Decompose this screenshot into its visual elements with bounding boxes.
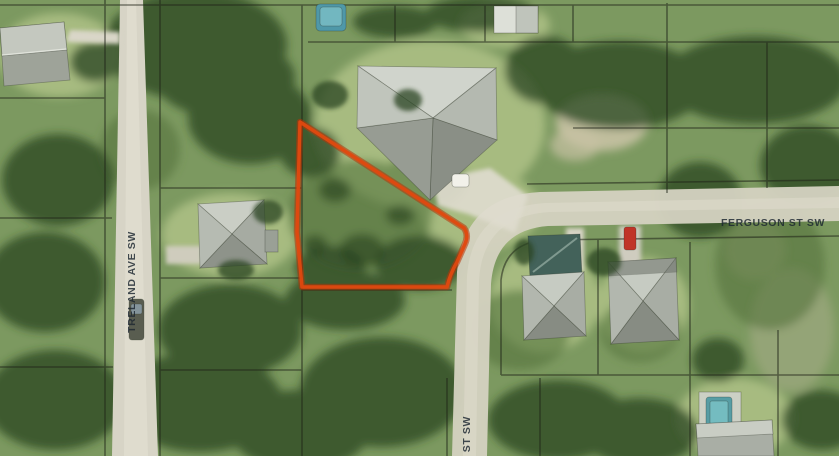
white-vehicle [452, 174, 469, 187]
street-label-ferguson-south-partial: FERGUSON ST SW [461, 416, 473, 456]
satellite-image: FERGUSON ST SW TRELAND AVE SW FERGUSON S… [0, 0, 839, 456]
building-top-right-shed [494, 6, 538, 33]
building-south-2 [608, 258, 679, 344]
street-label-ferguson: FERGUSON ST SW [721, 217, 825, 229]
aerial-map-view[interactable]: FERGUSON ST SW TRELAND AVE SW FERGUSON S… [0, 0, 839, 456]
red-vehicle [624, 227, 636, 250]
building-top-left [0, 22, 70, 86]
street-label-treland-ave: TRELAND AVE SW [126, 231, 138, 333]
